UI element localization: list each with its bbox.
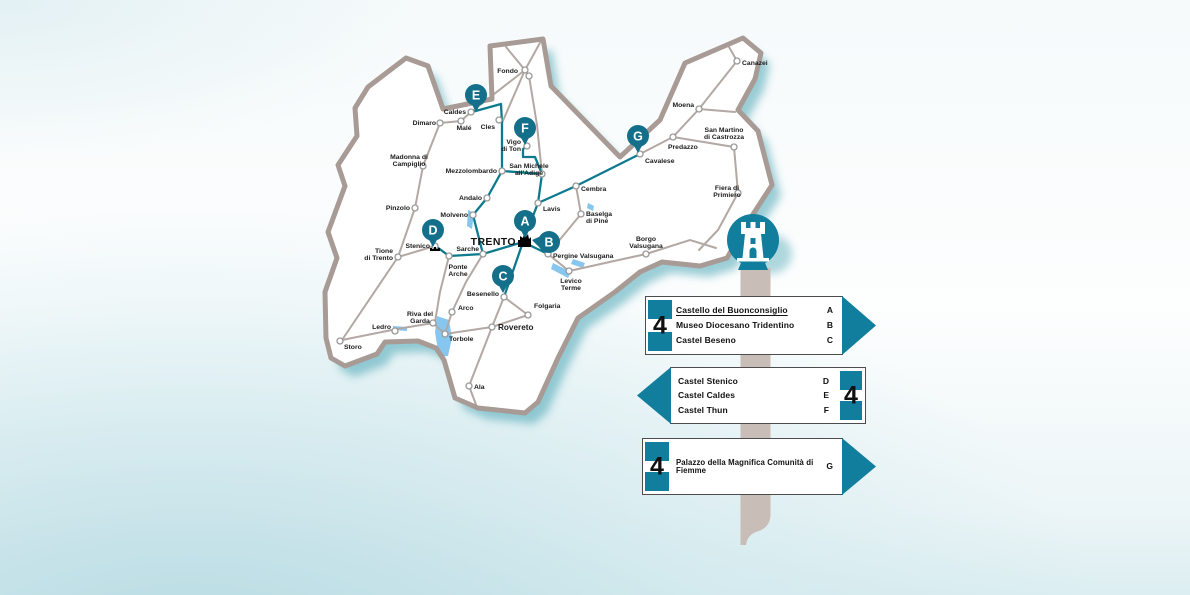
svg-text:A: A	[520, 215, 529, 229]
town-node	[484, 195, 490, 201]
sign-entry-label: Palazzo della Magnifica Comunità di Fiem…	[676, 459, 826, 475]
town-label: Fondo	[497, 68, 518, 75]
town-label: Andalo	[459, 195, 482, 202]
town-label: Lavis	[543, 206, 561, 213]
town-node	[458, 118, 464, 124]
capital-label: TRENTO	[471, 236, 516, 248]
svg-text:F: F	[521, 122, 529, 136]
town-label: Stenico	[405, 243, 430, 250]
town-label: Ala	[474, 384, 485, 391]
town-label: Besenello	[467, 291, 499, 298]
town-node	[731, 144, 737, 150]
sign-entry-A[interactable]: Castello del BuonconsiglioA	[676, 306, 833, 315]
town-label: Canazei	[742, 60, 768, 67]
town-label: Predazzo	[668, 144, 698, 151]
town-node	[446, 253, 452, 259]
sign-entry-G[interactable]: Palazzo della Magnifica Comunità di Fiem…	[676, 459, 833, 475]
town-label: Mezzolombardo	[446, 168, 497, 175]
sign-entry-F[interactable]: Castel ThunF	[678, 406, 829, 415]
trentino-castles-infographic: FondoCaldesMaléDimaroClesVigodi TonMadon…	[0, 0, 1190, 595]
town-label: San Martinodi Castrozza	[704, 127, 744, 141]
sign-entry-letter: F	[824, 406, 829, 415]
town-label: Ledro	[372, 324, 391, 331]
svg-text:G: G	[633, 130, 643, 144]
town-label: Riva delGarda	[407, 311, 433, 325]
town-node	[535, 200, 541, 206]
town-node	[670, 134, 676, 140]
town-label: Cles	[481, 124, 496, 131]
sign-entry-D[interactable]: Castel StenicoD	[678, 377, 829, 386]
svg-text:D: D	[428, 224, 437, 238]
town-node	[573, 183, 579, 189]
town-label: Cembra	[581, 186, 607, 193]
town-node	[578, 211, 584, 217]
town-label: Caldes	[444, 109, 467, 116]
town-label: Rovereto	[498, 323, 534, 332]
province-shape	[325, 38, 772, 413]
town-node	[489, 324, 495, 330]
svg-text:C: C	[498, 270, 507, 284]
town-node	[696, 106, 702, 112]
town-label: LevicoTerme	[560, 278, 582, 292]
town-node	[526, 73, 532, 79]
town-node	[466, 383, 472, 389]
svg-text:B: B	[544, 236, 553, 250]
town-label: Malé	[456, 125, 471, 132]
town-node	[449, 309, 455, 315]
town-node	[412, 205, 418, 211]
sign-entry-letter: B	[827, 321, 833, 330]
sign-entry-B[interactable]: Museo Diocesano TridentinoB	[676, 321, 833, 330]
town-label: Pinzolo	[386, 205, 410, 212]
town-label: PonteArche	[448, 264, 467, 278]
sign-board-g: 4 Palazzo della Magnifica Comunità di Fi…	[642, 438, 843, 495]
sign-entry-label: Museo Diocesano Tridentino	[676, 321, 794, 330]
sign-entry-label: Castel Stenico	[678, 377, 738, 386]
sign-entry-C[interactable]: Castel BesenoC	[676, 336, 833, 345]
sign-entry-label: Castel Beseno	[676, 336, 736, 345]
town-node	[566, 268, 572, 274]
town-node	[430, 320, 436, 326]
town-node	[395, 254, 401, 260]
sign-entry-letter: A	[827, 306, 833, 315]
town-label: Arco	[458, 305, 474, 312]
town-node	[496, 117, 502, 123]
town-label: Torbole	[449, 336, 474, 343]
sign-board-abc: 4 Castello del BuonconsiglioAMuseo Dioce…	[645, 296, 843, 355]
town-node	[442, 331, 448, 337]
sign-entry-E[interactable]: Castel CaldesE	[678, 391, 829, 400]
town-label: Molveno	[440, 212, 468, 219]
sign-entry-letter: C	[827, 336, 833, 345]
town-label: San Micheleall'Adige	[509, 163, 549, 177]
town-node	[525, 312, 531, 318]
town-node	[499, 168, 505, 174]
town-node	[470, 212, 476, 218]
sign-entry-letter: D	[823, 377, 829, 386]
svg-text:E: E	[472, 89, 480, 103]
sign-board-def: 4 Castel StenicoDCastel CaldesECastel Th…	[670, 367, 866, 424]
sign-entry-label: Castel Thun	[678, 406, 728, 415]
town-label: Moena	[672, 102, 694, 109]
town-node	[480, 251, 486, 257]
town-node	[522, 67, 528, 73]
sign-entry-label: Castello del Buonconsiglio	[676, 306, 788, 315]
town-label: Cavalese	[645, 158, 675, 165]
town-label: Madonna diCampiglio	[390, 154, 428, 168]
town-label: Fiera diPrimiero	[713, 185, 741, 199]
town-label: Dimaro	[413, 120, 436, 127]
town-label: Pergine Valsugana	[553, 253, 614, 260]
town-label: Folgaria	[534, 303, 561, 310]
town-node	[734, 58, 740, 64]
town-label: Storo	[344, 344, 362, 351]
town-node	[337, 338, 343, 344]
town-node	[501, 294, 507, 300]
sign-entry-label: Castel Caldes	[678, 391, 735, 400]
map-canvas: FondoCaldesMaléDimaroClesVigodi TonMadon…	[0, 0, 1190, 595]
sign-entry-letter: G	[826, 462, 833, 471]
sign-entry-letter: E	[823, 391, 829, 400]
town-node	[437, 120, 443, 126]
town-node	[392, 328, 398, 334]
town-node	[468, 109, 474, 115]
town-node	[643, 251, 649, 257]
